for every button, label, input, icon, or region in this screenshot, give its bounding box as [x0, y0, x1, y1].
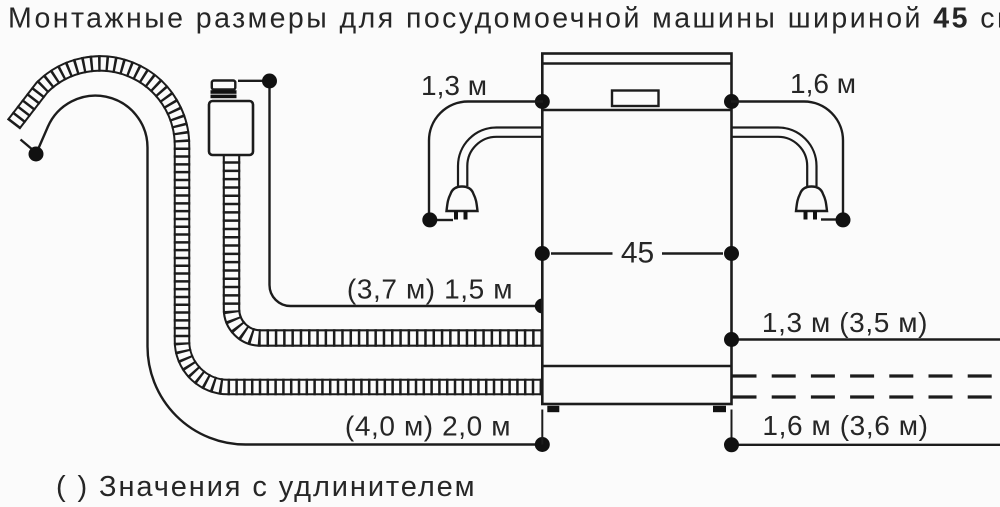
svg-text:( ) Значения с удлинителем: ( ) Значения с удлинителем	[56, 471, 477, 503]
svg-text:(3,7 м) 1,5 м: (3,7 м) 1,5 м	[347, 274, 513, 305]
svg-text:1,6 м: 1,6 м	[790, 68, 856, 99]
svg-text:1,3 м (3,5 м): 1,3 м (3,5 м)	[762, 307, 928, 338]
svg-text:1,6 м (3,6 м): 1,6 м (3,6 м)	[762, 410, 928, 441]
svg-text:(4,0 м) 2,0 м: (4,0 м) 2,0 м	[345, 411, 511, 442]
svg-text:45: 45	[621, 237, 654, 270]
svg-text:1,3 м: 1,3 м	[421, 70, 487, 101]
svg-text:Монтажные размеры для посудомо: Монтажные размеры для посудомоечной маши…	[8, 3, 1000, 35]
